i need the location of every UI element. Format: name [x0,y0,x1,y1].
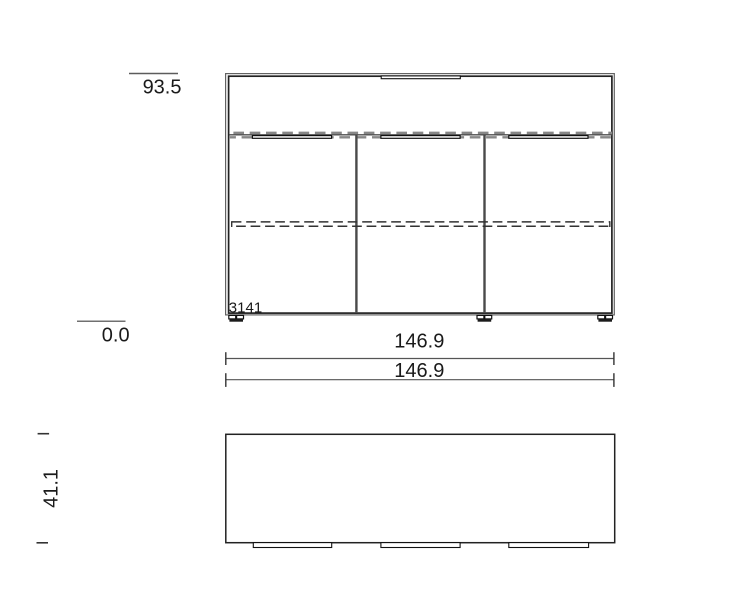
svg-text:93.5: 93.5 [143,77,182,99]
svg-text:3141: 3141 [229,299,262,316]
svg-text:0.0: 0.0 [102,324,130,346]
svg-text:41.1: 41.1 [41,469,63,508]
svg-text:146.9: 146.9 [394,360,444,382]
svg-text:146.9: 146.9 [394,331,444,353]
